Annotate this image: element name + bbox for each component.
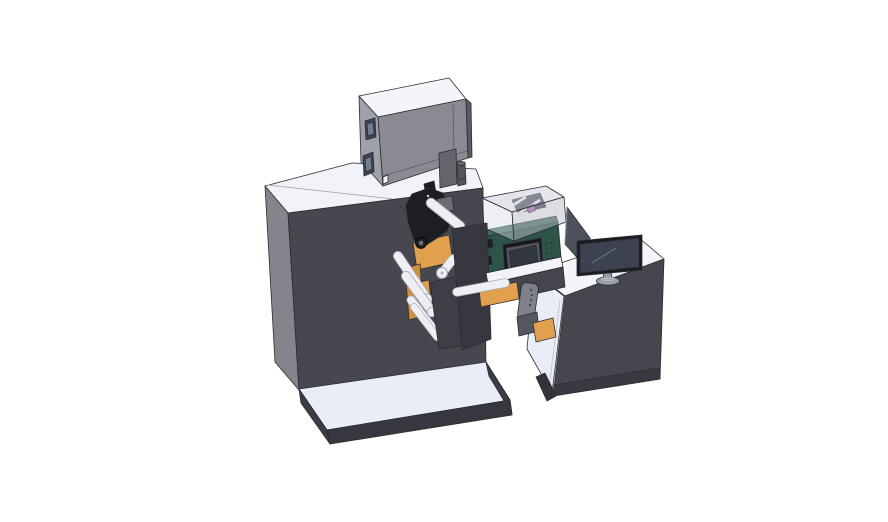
pendant-button-4 bbox=[529, 304, 531, 306]
box-label-square bbox=[383, 175, 388, 184]
short-roller-hub bbox=[441, 272, 444, 275]
box-window-pane-bottom bbox=[365, 156, 372, 172]
main-machine-cabinet bbox=[265, 163, 486, 390]
vent-dot bbox=[545, 243, 547, 245]
cad-render-canvas bbox=[0, 0, 888, 522]
machine-assembly-render bbox=[0, 0, 888, 522]
mechanism-roller-hub bbox=[419, 241, 424, 246]
monitor-screen bbox=[580, 238, 639, 273]
vent-dot bbox=[546, 253, 548, 255]
box-window-pane-top bbox=[367, 122, 374, 136]
rear-panel-slab bbox=[439, 149, 457, 188]
vent-dot bbox=[551, 247, 553, 249]
pendant-button-1 bbox=[530, 289, 532, 291]
signal-cylinder bbox=[457, 162, 466, 187]
pendant-button-3 bbox=[530, 299, 532, 301]
monitor-base-top bbox=[601, 277, 615, 282]
mechanism-dot-1 bbox=[427, 195, 429, 197]
slab-face bbox=[439, 149, 457, 188]
cylinder-cap bbox=[457, 162, 465, 166]
vent-dot bbox=[551, 252, 553, 254]
vent-dot bbox=[546, 248, 548, 250]
pendant-button-2 bbox=[531, 294, 533, 296]
vent-dot bbox=[550, 242, 552, 244]
